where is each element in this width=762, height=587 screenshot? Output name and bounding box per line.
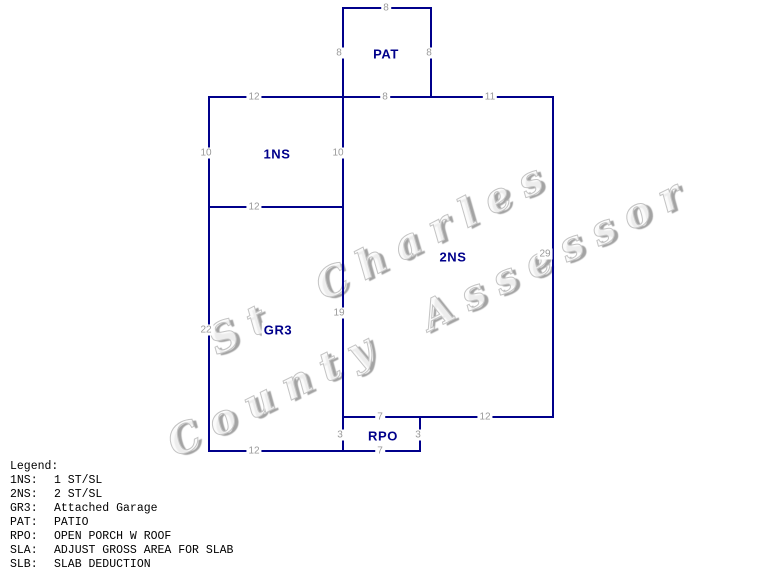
dimension-label: 10 <box>330 148 345 159</box>
watermark-line-1: St Charles <box>200 149 562 364</box>
legend-row: SLA:ADJUST GROSS AREA FOR SLAB <box>10 544 233 558</box>
legend-desc: OPEN PORCH W ROOF <box>54 530 171 544</box>
legend-row: 1NS:1 ST/SL <box>10 474 233 488</box>
legend-code: PAT: <box>10 516 54 530</box>
legend-row: RPO:OPEN PORCH W ROOF <box>10 530 233 544</box>
dimension-label: 11 <box>483 92 497 103</box>
area-label-2ns: 2NS <box>437 250 468 265</box>
dimension-label: 12 <box>246 446 261 457</box>
dimension-label: 22 <box>198 325 213 336</box>
legend-code: SLB: <box>10 558 54 572</box>
dimension-label: 7 <box>375 446 385 457</box>
sketch-canvas: St Charles County Assessor 8888121110101… <box>0 0 762 587</box>
dimension-label: 3 <box>335 430 345 441</box>
legend-code: 2NS: <box>10 488 54 502</box>
dimension-label: 10 <box>198 148 213 159</box>
legend-desc: SLAB DEDUCTION <box>54 558 151 572</box>
dimension-label: 12 <box>246 202 261 213</box>
legend-row: PAT:PATIO <box>10 516 233 530</box>
legend-code: 1NS: <box>10 474 54 488</box>
legend-code: GR3: <box>10 502 54 516</box>
area-label-pat: PAT <box>371 47 401 62</box>
dimension-label: 19 <box>331 308 346 319</box>
dimension-label: 3 <box>413 430 423 441</box>
sketch-line <box>342 7 344 452</box>
dimension-label: 8 <box>334 48 344 59</box>
sketch-line <box>209 206 344 208</box>
legend-row: GR3:Attached Garage <box>10 502 233 516</box>
legend-desc: 1 ST/SL <box>54 474 102 488</box>
legend-heading: Legend: <box>10 460 233 474</box>
legend-desc: ADJUST GROSS AREA FOR SLAB <box>54 544 233 558</box>
area-label-rpo: RPO <box>366 429 400 444</box>
dimension-label: 8 <box>380 92 390 103</box>
legend-row: 2NS:2 ST/SL <box>10 488 233 502</box>
legend-code: SLA: <box>10 544 54 558</box>
dimension-label: 8 <box>424 48 434 59</box>
legend-desc: Attached Garage <box>54 502 158 516</box>
sketch-line <box>342 416 554 418</box>
legend-row: SLB:SLAB DEDUCTION <box>10 558 233 572</box>
legend: Legend: 1NS:1 ST/SL2NS:2 ST/SLGR3:Attach… <box>10 460 233 572</box>
dimension-label: 12 <box>477 412 492 423</box>
legend-code: RPO: <box>10 530 54 544</box>
dimension-label: 29 <box>537 249 552 260</box>
legend-entries: 1NS:1 ST/SL2NS:2 ST/SLGR3:Attached Garag… <box>10 474 233 572</box>
dimension-label: 7 <box>375 412 385 423</box>
dimension-label: 12 <box>246 92 261 103</box>
area-label-1ns: 1NS <box>261 147 292 162</box>
dimension-label: 8 <box>381 3 391 14</box>
legend-desc: 2 ST/SL <box>54 488 102 502</box>
watermark-line-2: County Assessor <box>160 165 702 467</box>
legend-desc: PATIO <box>54 516 89 530</box>
area-label-gr3: GR3 <box>262 323 295 338</box>
sketch-line <box>209 450 421 452</box>
